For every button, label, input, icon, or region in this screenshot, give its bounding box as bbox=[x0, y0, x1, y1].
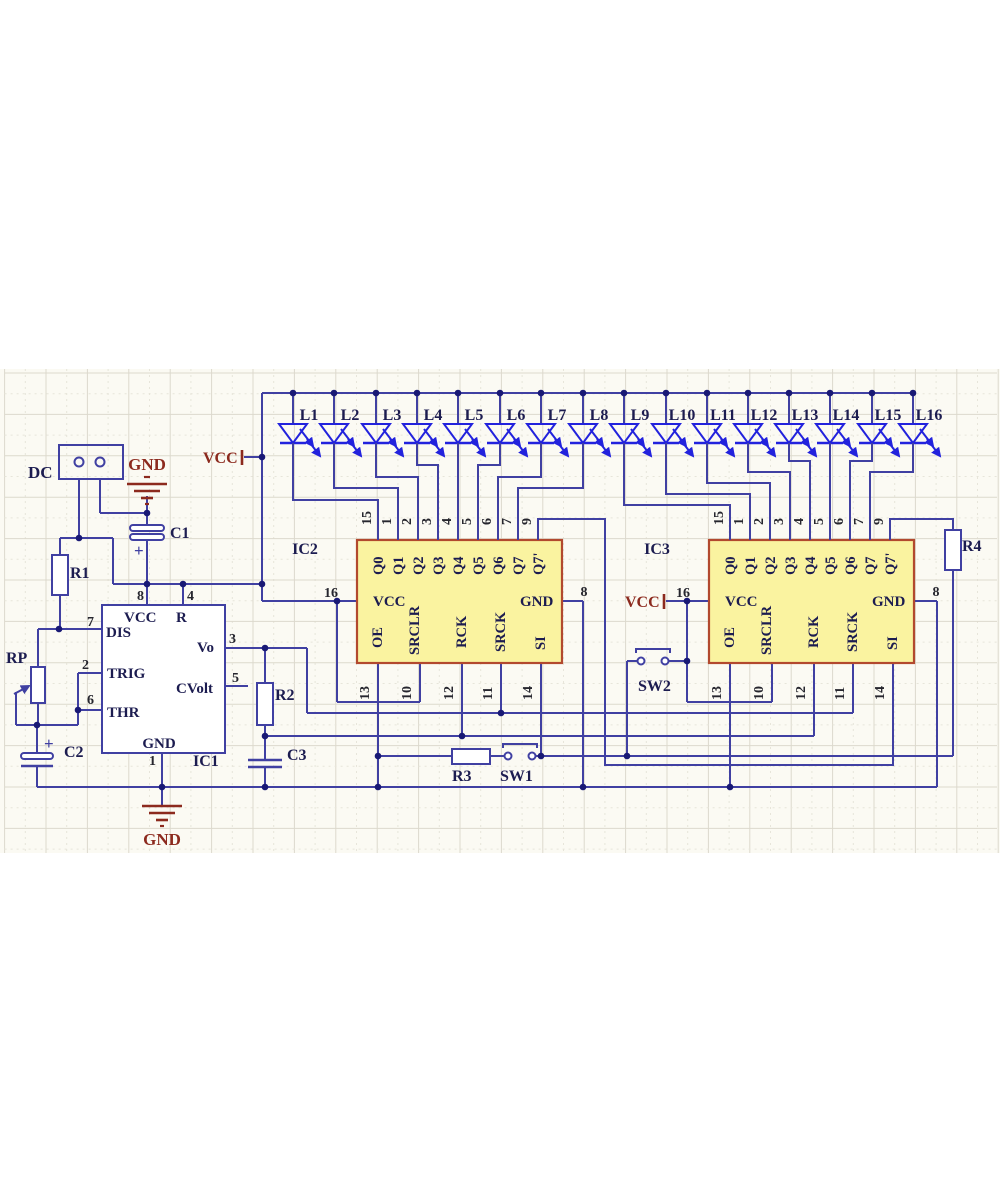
ic1-pin-number: 3 bbox=[229, 632, 236, 647]
vcc-left-label: VCC bbox=[203, 450, 238, 467]
junction-dot bbox=[745, 390, 752, 397]
ic2-shift-register-pin-number: 2 bbox=[400, 518, 415, 525]
ic3-shift-register-output-label: Q5 bbox=[823, 556, 839, 575]
ic3-shift-register-pin-number: 13 bbox=[710, 686, 725, 700]
resistor-r4-label: R4 bbox=[962, 538, 982, 555]
led-label: L5 bbox=[465, 407, 484, 424]
ic2-shift-register-pin-number: 13 bbox=[358, 686, 373, 700]
junction-dot bbox=[75, 707, 82, 714]
led-label: L15 bbox=[875, 407, 902, 424]
ic3-shift-register-pin-number: 11 bbox=[833, 687, 848, 700]
c2-plus-sign: + bbox=[44, 734, 54, 753]
junction-dot bbox=[259, 581, 266, 588]
ic3-shift-register-output-label: Q3 bbox=[783, 556, 799, 575]
ic1-pin-number: 1 bbox=[149, 754, 156, 769]
ic2-shift-register-label-vcc: VCC bbox=[373, 594, 406, 610]
junction-dot bbox=[76, 535, 83, 542]
junction-dot bbox=[56, 626, 63, 633]
ic2-shift-register-label-rck: RCK bbox=[454, 615, 470, 648]
junction-dot bbox=[159, 784, 166, 791]
ic2-shift-register-label-si: SI bbox=[533, 636, 549, 650]
ic2-shift-register-pin-number: 4 bbox=[440, 518, 455, 525]
ic3-shift-register-label-srclr: SRCLR bbox=[759, 605, 775, 655]
ic2-shift-register-output-label: Q6 bbox=[491, 556, 507, 575]
ic2-shift-register-pin-number: 7 bbox=[500, 518, 515, 525]
junction-dot bbox=[144, 581, 151, 588]
led-label: L11 bbox=[710, 407, 736, 424]
ic1-555-timer: VCCRDISTRIGTHRVoCVoltGNDIC184726351 bbox=[82, 589, 239, 770]
ic3-shift-register-label-oe: OE bbox=[722, 627, 738, 648]
ic2-shift-register-pin-number: 10 bbox=[400, 686, 415, 700]
gnd-symbol-bottom-label: GND bbox=[143, 830, 181, 849]
resistor-r2-label: R2 bbox=[275, 687, 295, 704]
led-label: L14 bbox=[833, 407, 860, 424]
ic2-shift-register-output-label: Q1 bbox=[391, 556, 407, 575]
led-label: L9 bbox=[631, 407, 650, 424]
ic2-shift-register-label-srclr: SRCLR bbox=[407, 605, 423, 655]
led-label: L3 bbox=[383, 407, 402, 424]
switch-sw1-terminal bbox=[529, 753, 536, 760]
resistor-r4 bbox=[945, 530, 961, 570]
ic3-shift-register-pin-number: 8 bbox=[933, 585, 940, 600]
ic1-ref-label: IC1 bbox=[193, 753, 219, 770]
led-label: L12 bbox=[751, 407, 778, 424]
ic3-shift-register-label-si: SI bbox=[885, 636, 901, 650]
junction-dot bbox=[727, 784, 734, 791]
junction-dot bbox=[414, 390, 421, 397]
led-label: L1 bbox=[300, 407, 319, 424]
ic2-shift-register-pin-number: 6 bbox=[480, 518, 495, 525]
ic1-pin-number: 7 bbox=[87, 615, 94, 630]
ic3-shift-register-output-label: Q7' bbox=[883, 552, 899, 575]
junction-dot bbox=[262, 784, 269, 791]
cap-c3-label: C3 bbox=[287, 747, 307, 764]
junction-dot bbox=[144, 510, 151, 517]
junction-dot bbox=[663, 390, 670, 397]
resistor-r2 bbox=[257, 683, 273, 725]
junction-dot bbox=[580, 390, 587, 397]
junction-dot bbox=[827, 390, 834, 397]
junction-dot bbox=[497, 390, 504, 397]
resistor-r1 bbox=[52, 555, 68, 595]
ic1-pin-number: 4 bbox=[187, 589, 194, 604]
ic2-shift-register-output-label: Q3 bbox=[431, 556, 447, 575]
junction-dot bbox=[684, 658, 691, 665]
ic2-shift-register-pin-number: 11 bbox=[481, 687, 496, 700]
cap-plate bbox=[130, 525, 164, 531]
switch-sw1-terminal bbox=[505, 753, 512, 760]
ic2-shift-register-pin-number: 8 bbox=[581, 585, 588, 600]
ic1-pin-vo: Vo bbox=[197, 640, 214, 656]
resistor-r3-label: R3 bbox=[452, 768, 472, 785]
ic3-shift-register-output-label: Q1 bbox=[743, 556, 759, 575]
junction-dot bbox=[786, 390, 793, 397]
ic1-pin-vcc: VCC bbox=[124, 610, 157, 626]
junction-dot bbox=[580, 784, 587, 791]
dc-label: DC bbox=[28, 463, 53, 482]
gnd-symbol-top-label: GND bbox=[128, 455, 166, 474]
ic1-pin-number: 5 bbox=[232, 671, 239, 686]
ic3-shift-register-pin-number: 7 bbox=[852, 518, 867, 525]
ic3-shift-register-pin-number: 5 bbox=[812, 518, 827, 525]
ic1-pin-r: R bbox=[176, 610, 187, 626]
ic3-shift-register-label-rck: RCK bbox=[806, 615, 822, 648]
c1-plus-sign: + bbox=[134, 541, 144, 560]
ic2-shift-register-pin-number: 1 bbox=[380, 518, 395, 525]
junction-dot bbox=[538, 390, 545, 397]
ic3-shift-register-pin-number: 4 bbox=[792, 518, 807, 525]
circuit-schematic: L1L2L3L4L5L6L7L8L9L10L11L12L13L14L15L16R… bbox=[0, 0, 1000, 1200]
ic1-pin-number: 8 bbox=[137, 589, 144, 604]
ic3-shift-register-pin-number: 3 bbox=[772, 518, 787, 525]
ic3-shift-register-output-label: Q0 bbox=[723, 556, 739, 575]
ic3-shift-register-pin-number: 14 bbox=[873, 686, 888, 700]
switch-sw1-label: SW1 bbox=[500, 768, 533, 785]
led-label: L4 bbox=[424, 407, 443, 424]
schematic-sheet: L1L2L3L4L5L6L7L8L9L10L11L12L13L14L15L16R… bbox=[0, 0, 1000, 1200]
ic2-shift-register-pin-number: 3 bbox=[420, 518, 435, 525]
junction-dot bbox=[375, 753, 382, 760]
ic2-shift-register-output-label: Q5 bbox=[471, 556, 487, 575]
ic1-pin-number: 6 bbox=[87, 693, 94, 708]
ic2-shift-register-pin-number: 9 bbox=[520, 518, 535, 525]
cap-plate bbox=[130, 534, 164, 540]
junction-dot bbox=[262, 645, 269, 652]
ic3-shift-register-output-label: Q2 bbox=[763, 556, 779, 575]
ic2-shift-register-pin-number: 12 bbox=[442, 686, 457, 700]
junction-dot bbox=[334, 598, 341, 605]
junction-dot bbox=[34, 722, 41, 729]
led-label: L8 bbox=[590, 407, 609, 424]
ic2-shift-register-output-label: Q7 bbox=[511, 556, 527, 575]
ic2-shift-register-output-label: Q7' bbox=[531, 552, 547, 575]
ic3-shift-register-pin-number: 10 bbox=[752, 686, 767, 700]
ic2-shift-register-pin-number: 14 bbox=[521, 686, 536, 700]
led-label: L16 bbox=[916, 407, 943, 424]
ic3-shift-register-ref-label: IC3 bbox=[644, 541, 670, 558]
ic1-pin-cvolt: CVolt bbox=[176, 681, 213, 697]
junction-dot bbox=[621, 390, 628, 397]
ic1-pin-number: 2 bbox=[82, 658, 89, 673]
junction-dot bbox=[704, 390, 711, 397]
junction-dot bbox=[910, 390, 917, 397]
potentiometer-rp-label: RP bbox=[6, 650, 28, 667]
junction-dot bbox=[180, 581, 187, 588]
ic3-shift-register-pin-number: 1 bbox=[732, 518, 747, 525]
ic3-shift-register-pin-number: 12 bbox=[794, 686, 809, 700]
ic2-shift-register-label-srck: SRCK bbox=[493, 611, 509, 652]
cap-plate bbox=[21, 753, 53, 759]
ic2-shift-register-output-label: Q2 bbox=[411, 556, 427, 575]
junction-dot bbox=[373, 390, 380, 397]
junction-dot bbox=[684, 598, 691, 605]
junction-dot bbox=[262, 733, 269, 740]
ic2-shift-register-label-oe: OE bbox=[370, 627, 386, 648]
junction-dot bbox=[331, 390, 338, 397]
junction-dot bbox=[375, 784, 382, 791]
junction-dot bbox=[624, 753, 631, 760]
junction-dot bbox=[455, 390, 462, 397]
led-label: L7 bbox=[548, 407, 567, 424]
junction-dot bbox=[538, 753, 545, 760]
ic1-pin-gnd: GND bbox=[142, 736, 176, 752]
ic2-shift-register-ref-label: IC2 bbox=[292, 541, 318, 558]
cap-c2-label: C2 bbox=[64, 744, 84, 761]
switch-sw2-terminal bbox=[662, 658, 669, 665]
ic1-pin-thr: THR bbox=[107, 705, 140, 721]
junction-dot bbox=[259, 454, 266, 461]
ic2-shift-register-pin-number: 5 bbox=[460, 518, 475, 525]
ic3-shift-register-label-vcc: VCC bbox=[725, 594, 758, 610]
led-label: L6 bbox=[507, 407, 526, 424]
cap-c1-label: C1 bbox=[170, 525, 190, 542]
ic3-shift-register-label-gnd: GND bbox=[872, 594, 906, 610]
led-label: L2 bbox=[341, 407, 360, 424]
led-label: L13 bbox=[792, 407, 819, 424]
ic1-pin-trig: TRIG bbox=[107, 666, 146, 682]
junction-dot bbox=[290, 390, 297, 397]
switch-sw2-terminal bbox=[638, 658, 645, 665]
vcc-right-label: VCC bbox=[625, 594, 660, 611]
ic2-shift-register-output-label: Q4 bbox=[451, 556, 467, 575]
junction-dot bbox=[869, 390, 876, 397]
ic3-shift-register-pin-number: 2 bbox=[752, 518, 767, 525]
switch-sw2-label: SW2 bbox=[638, 678, 671, 695]
junction-dot bbox=[459, 733, 466, 740]
potentiometer-rp bbox=[31, 667, 45, 703]
ic2-shift-register-label-gnd: GND bbox=[520, 594, 554, 610]
led-label: L10 bbox=[669, 407, 696, 424]
ic2-shift-register-pin-number: 15 bbox=[360, 511, 375, 525]
ic3-shift-register-pin-number: 9 bbox=[872, 518, 887, 525]
resistor-r3 bbox=[452, 749, 490, 764]
ic3-shift-register-pin-number: 15 bbox=[712, 511, 727, 525]
ic3-shift-register-output-label: Q6 bbox=[843, 556, 859, 575]
resistor-r1-label: R1 bbox=[70, 565, 90, 582]
ic2-shift-register-output-label: Q0 bbox=[371, 556, 387, 575]
ic3-shift-register-output-label: Q4 bbox=[803, 556, 819, 575]
junction-dot bbox=[498, 710, 505, 717]
ic3-shift-register-label-srck: SRCK bbox=[845, 611, 861, 652]
ic3-shift-register-output-label: Q7 bbox=[863, 556, 879, 575]
ic1-pin-dis: DIS bbox=[106, 625, 131, 641]
ic3-shift-register-pin-number: 6 bbox=[832, 518, 847, 525]
